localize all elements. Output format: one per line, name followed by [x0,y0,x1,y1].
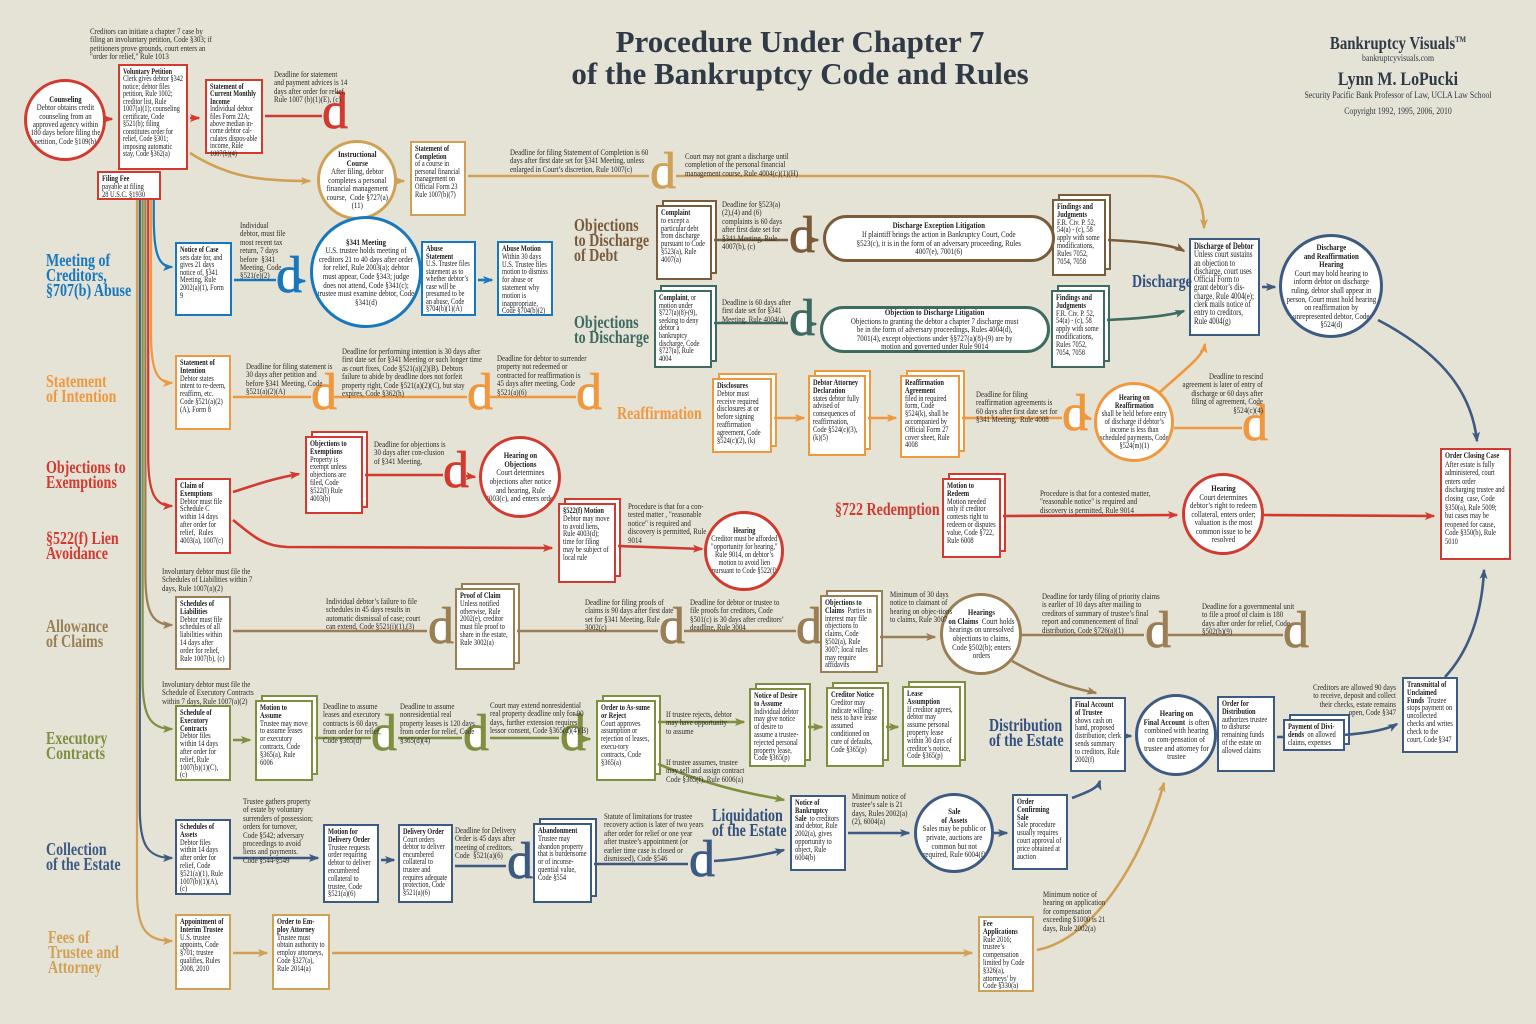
svg-text:d: d [789,290,815,347]
svg-text:d: d [796,598,822,655]
svg-text:d: d [789,207,815,264]
svg-text:d: d [428,598,454,655]
svg-text:d: d [1062,385,1088,442]
